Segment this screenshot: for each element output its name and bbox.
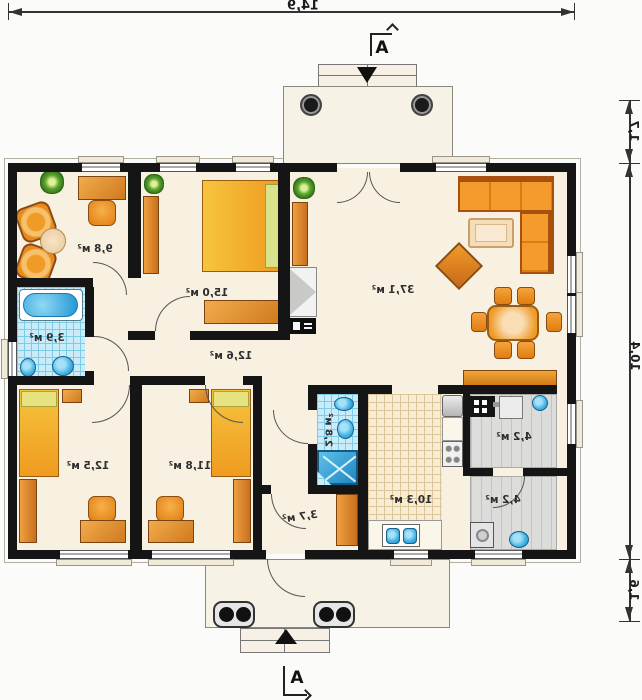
section-label-top: A — [375, 38, 388, 58]
sink-bowl — [403, 528, 417, 544]
porch-light-icon — [411, 94, 433, 116]
window — [567, 256, 576, 293]
wall — [8, 163, 17, 342]
coffee-table — [468, 218, 514, 248]
wall — [130, 385, 142, 550]
toilet-icon — [337, 419, 354, 439]
desk-chair — [156, 496, 184, 522]
room-label-living: 37,1 м² — [372, 284, 415, 296]
toilet-icon — [509, 531, 529, 548]
washer-drum — [476, 529, 489, 542]
wall — [17, 278, 93, 287]
window — [394, 550, 428, 559]
wall — [428, 550, 475, 559]
porch-light-pair-icon — [313, 601, 355, 628]
kitchen-counter — [442, 417, 463, 441]
window-sill — [232, 156, 274, 163]
plant-icon — [144, 174, 164, 194]
window — [567, 404, 576, 444]
dimension-arrow-icon — [625, 607, 633, 620]
wall — [128, 550, 152, 559]
wall — [463, 468, 493, 476]
window — [436, 163, 486, 172]
window — [475, 550, 522, 559]
sink-icon — [334, 397, 354, 411]
wall — [486, 163, 576, 172]
bathtub-basin — [23, 293, 78, 317]
hearth-door — [293, 322, 300, 330]
dimension-label-porch: 1,7 — [627, 120, 641, 141]
plant-icon — [293, 177, 315, 199]
round-table — [40, 228, 66, 254]
dimension-arrow-icon — [625, 149, 633, 162]
desk-chair — [88, 496, 116, 522]
fireplace-funnel — [290, 269, 316, 315]
dimension-label-terrace: 1,6 — [627, 579, 641, 600]
stove-icon — [442, 441, 463, 467]
wall — [8, 163, 82, 172]
office-chair — [88, 200, 116, 226]
dimension-tick — [619, 621, 640, 622]
light-bulb-icon — [236, 607, 251, 622]
window-sill — [78, 156, 124, 163]
window — [160, 163, 196, 172]
dimension-label-depth: 10,4 — [628, 341, 642, 371]
dimension-arrow-icon — [625, 164, 633, 177]
section-marker-line — [370, 33, 392, 35]
room-label-bedroom-master: 15,0 м² — [186, 287, 229, 299]
dining-chair — [494, 341, 512, 359]
wall — [278, 172, 290, 340]
light-bulb-icon — [336, 607, 351, 622]
dimension-arrow-icon — [625, 101, 633, 114]
wall — [358, 385, 368, 550]
wall — [308, 394, 317, 410]
dining-table — [487, 305, 539, 341]
room-label-laundry: 4,2 м² — [485, 494, 520, 506]
wall — [253, 385, 262, 550]
wall — [243, 376, 262, 385]
floor-plan: 9,8 м² 15,0 м² 3,9 м² 12,6 м² 37,1 м² 12… — [0, 0, 642, 700]
wall — [567, 444, 576, 559]
wall — [196, 163, 236, 172]
dining-chair — [546, 312, 562, 332]
porch-light-pair-icon — [213, 601, 255, 628]
desk — [80, 520, 126, 543]
dimension-arrow-icon — [625, 545, 633, 558]
wall — [400, 163, 436, 172]
section-label-bottom: A — [290, 668, 303, 688]
plant-icon — [40, 170, 64, 194]
section-marker-line — [283, 666, 285, 696]
room-label-bedroom-left: 12,5 м² — [67, 460, 110, 472]
room-label-office: 9,8 м² — [77, 243, 112, 255]
kitchen-sink — [382, 524, 420, 547]
window-sill — [471, 559, 526, 566]
section-marker-line — [370, 33, 372, 56]
wall — [523, 468, 567, 476]
window — [82, 163, 120, 172]
window — [152, 550, 230, 559]
dimension-label-width: 14,9 — [287, 0, 319, 14]
wall — [567, 163, 576, 256]
closet — [336, 494, 358, 546]
dining-chair — [517, 341, 535, 359]
dimension-arrow-icon — [625, 560, 633, 573]
light-bulb-icon — [319, 607, 334, 622]
hearth-vent — [304, 323, 312, 325]
window-sill — [1, 339, 8, 379]
section-arrow-icon — [299, 689, 312, 700]
entry-arrow-icon — [275, 629, 297, 644]
window — [8, 342, 17, 376]
wall — [230, 550, 266, 559]
wall — [308, 385, 392, 394]
window-sill — [576, 252, 583, 297]
window-sill — [56, 559, 132, 566]
toilet-icon — [20, 358, 36, 377]
room-label-shower-room: 2,8 м² — [323, 413, 334, 447]
room-label-bathroom: 3,9 м² — [29, 332, 64, 344]
boiler-stove-icon — [470, 396, 495, 417]
window — [236, 163, 270, 172]
sink-bowl — [386, 528, 400, 544]
wall — [308, 485, 368, 494]
wall — [305, 550, 394, 559]
wall — [190, 331, 290, 340]
hearth-vent — [304, 327, 312, 329]
wardrobe — [19, 479, 37, 543]
window-sill — [576, 292, 583, 337]
wall — [128, 172, 141, 278]
washing-machine-icon — [470, 522, 494, 548]
wardrobe — [143, 196, 159, 274]
wall — [270, 163, 337, 172]
wall — [17, 376, 92, 385]
porch-light-icon — [300, 94, 322, 116]
window — [567, 296, 576, 333]
living-cabinet — [292, 202, 308, 266]
wall — [262, 485, 271, 494]
dimension-arrow-icon — [561, 8, 574, 16]
entry-arrow-icon — [357, 67, 377, 83]
water-heater-icon — [499, 396, 523, 419]
room-label-utility: 4,2 м² — [496, 431, 531, 443]
wall — [567, 333, 576, 404]
desk — [148, 520, 194, 543]
sink-icon — [52, 356, 74, 376]
dimension-tick — [574, 3, 575, 20]
sink-icon — [532, 395, 548, 411]
room-label-bedroom-middle: 11,8 м² — [169, 460, 212, 472]
bed-pillow — [21, 391, 57, 407]
window-sill — [148, 559, 234, 566]
window-sill — [156, 156, 200, 163]
wall — [438, 385, 557, 394]
fireplace-hearth — [289, 318, 316, 334]
office-desk — [78, 176, 126, 200]
coffee-table-top — [475, 224, 507, 242]
window — [60, 550, 128, 559]
dining-chair — [517, 287, 535, 305]
bedroom-bench — [204, 300, 282, 324]
wall — [463, 394, 470, 468]
wall — [130, 376, 205, 385]
wardrobe — [233, 479, 251, 543]
dining-chair — [471, 312, 487, 332]
fireplace-icon — [289, 267, 317, 317]
fridge-icon — [442, 395, 463, 417]
dimension-arrow-icon — [9, 8, 22, 16]
window-sill — [390, 559, 432, 566]
window-sill — [576, 400, 583, 448]
bathtub — [19, 289, 83, 321]
corner-sofa-side — [520, 212, 554, 274]
wall — [8, 376, 17, 559]
kitchen-peninsula-counter — [463, 370, 557, 386]
wall — [128, 331, 155, 340]
nightstand — [62, 389, 82, 403]
window-sill — [432, 156, 490, 163]
dining-chair — [494, 287, 512, 305]
wall — [120, 163, 160, 172]
corner-sofa-top — [458, 176, 554, 212]
heater-pipe — [493, 402, 499, 407]
room-label-hallway: 12,6 м² — [210, 350, 253, 362]
light-bulb-icon — [219, 607, 234, 622]
room-label-kitchen: 10,3 м² — [390, 494, 433, 506]
